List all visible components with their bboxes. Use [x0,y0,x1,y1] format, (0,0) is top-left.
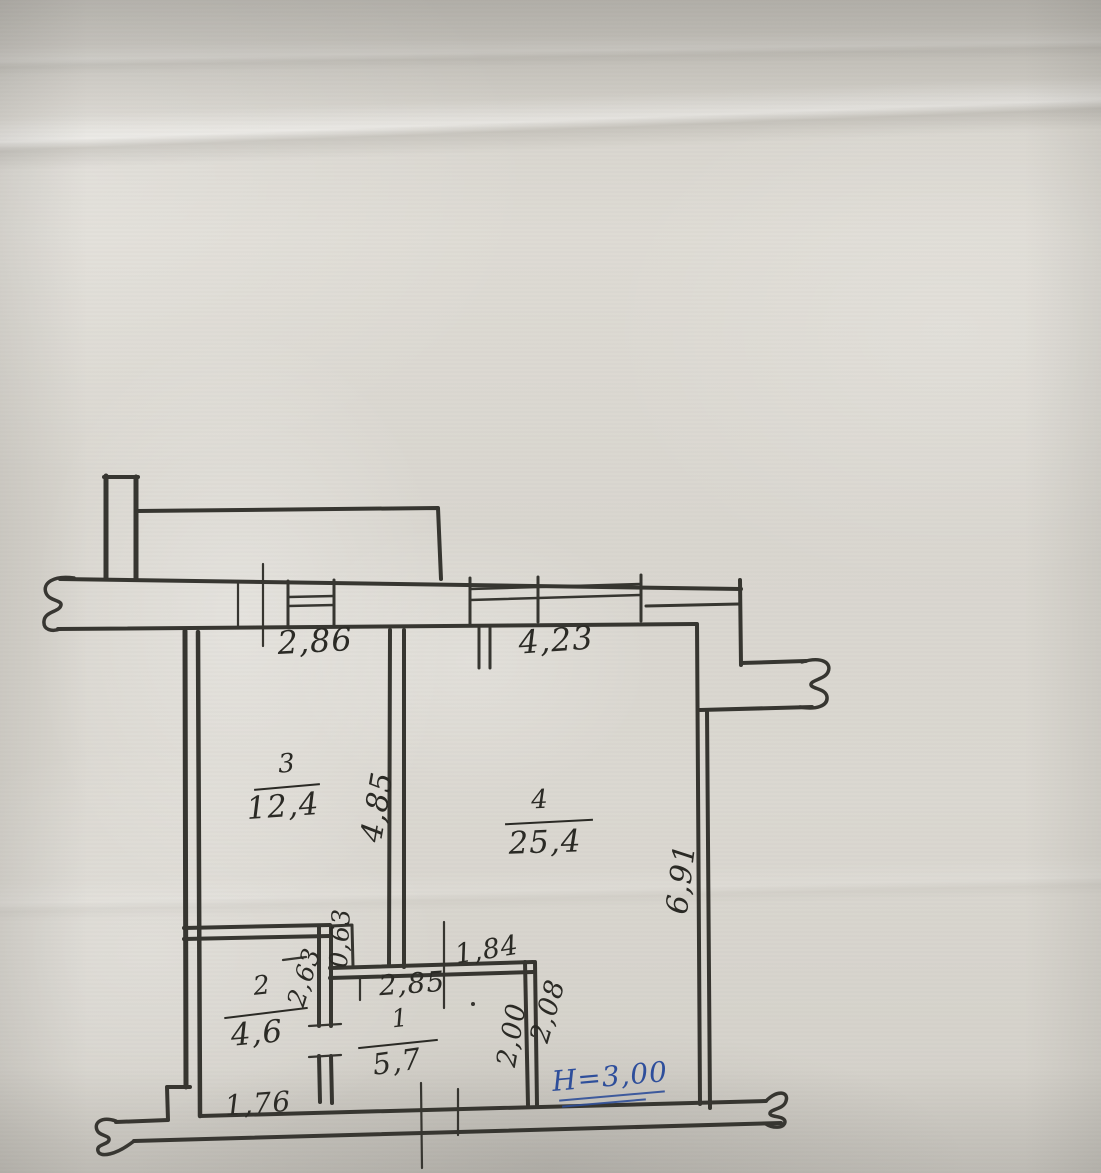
chimney-shaft [106,476,136,579]
room-3-area: 12,4 [245,789,320,825]
room-1-area: 5,7 [371,1044,424,1080]
room-4-number: 4 [531,787,550,814]
top-wall-inner [58,624,696,629]
dim-niche-label: 0,63 [326,908,354,969]
dim-right-side-label: 6,91 [663,842,701,916]
dim-room2-width-label: 1,76 [224,1088,292,1121]
break-bottom-left [96,1119,134,1154]
canopy-outline [137,508,441,579]
outer-walls [58,476,812,1141]
floorplan-photo: 2,86 4,23 3 12,4 4,85 4 25,4 6,91 0,63 2… [0,0,1101,1173]
left-wall-outer [185,631,186,1087]
room2-right-wall-lower [319,1056,332,1103]
bottom-left-step [116,1087,190,1122]
step-lintel [646,604,739,606]
step-wall-bottom [700,707,812,710]
dim-top-right-label: 4,23 [517,621,594,658]
room-2-area: 4,6 [230,1016,285,1051]
window-1-jambs [288,580,334,627]
room-4-area: 25,4 [508,826,582,860]
dimension-ticks [238,564,490,1168]
window-1-glass [288,596,334,606]
break-top-left [44,577,74,630]
break-top-right [800,660,829,708]
step-wall-top [741,661,806,663]
dim-hall-width-label: 2,85 [378,968,446,1001]
step-wall-vertical [740,580,741,665]
room-1-number: 1 [390,1005,409,1032]
room-2-number: 2 [252,972,272,1000]
room-3-number: 3 [277,750,296,777]
room2-door-jambs [309,1024,341,1057]
room2-top-wall [184,925,330,939]
right-wall-outer [707,710,710,1108]
dim-top-left-label: 2,86 [277,623,354,659]
left-wall-inner [198,632,200,1116]
